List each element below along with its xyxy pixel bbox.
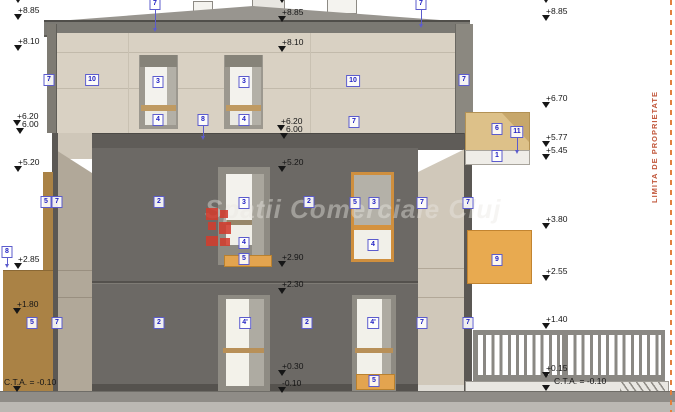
elevation-marker — [542, 0, 550, 3]
elevation-marker: C.T.A. = -0.10 — [13, 378, 56, 392]
watermark-logo-square — [206, 236, 218, 246]
window-reflection — [167, 67, 176, 105]
elevation-value: +8.10 — [18, 37, 40, 45]
property-line-dashed — [670, 0, 672, 412]
elevation-value: +2.30 — [282, 280, 304, 288]
elevation-value: +5.20 — [282, 158, 304, 166]
ref-box-7: 7 — [417, 317, 428, 329]
window-head — [225, 55, 262, 67]
leader-line — [7, 257, 8, 265]
fence-post-left — [473, 330, 477, 381]
ref-box-6: 6 — [492, 123, 503, 135]
elevation-marker: 6.00 — [277, 125, 303, 133]
watermark-logo-square — [206, 208, 218, 220]
ref-box-8: 8 — [2, 246, 13, 258]
elevation-marker: +1.40 — [542, 315, 568, 329]
ref-box-7: 7 — [44, 74, 55, 86]
watermark-logo-square — [220, 210, 228, 218]
window-low-left — [218, 295, 270, 391]
ref-box-2: 2 — [154, 196, 165, 208]
leader-arrow-icon — [5, 264, 9, 268]
ref-box-1: 1 — [492, 150, 503, 162]
elevation-marker: 6.00 — [13, 120, 39, 128]
elevation-marker: +8.85 — [14, 6, 40, 20]
facade-joint-highlight — [92, 283, 418, 284]
ref-box-11: 11 — [510, 126, 523, 138]
elevation-marker: +5.45 — [542, 146, 568, 160]
elevation-marker: +8.85 — [542, 7, 568, 21]
ground-subsoil — [0, 402, 675, 412]
ref-box-4: 4 — [153, 114, 164, 126]
elevation-triangle-icon — [13, 120, 21, 126]
ref-box-7: 7 — [416, 0, 427, 10]
ref-box-7: 7 — [463, 317, 474, 329]
watermark-logo-square — [219, 222, 231, 234]
window-reflection — [167, 111, 176, 125]
ref-box-4: 4 — [239, 114, 250, 126]
window-reflection — [252, 67, 261, 105]
ref-box-4: 4 — [239, 237, 250, 249]
fence-post-right — [661, 330, 665, 381]
leader-arrow-icon — [201, 136, 205, 140]
elevation-marker: +8.85 — [278, 8, 304, 22]
elevation-marker — [14, 0, 22, 3]
elevation-value: +1.40 — [546, 315, 568, 323]
window-head — [140, 55, 177, 67]
leader-line — [421, 9, 422, 25]
fence-balusters — [475, 335, 663, 376]
elevation-triangle-icon — [277, 125, 285, 131]
ref-box-2: 2 — [302, 317, 313, 329]
elevation-marker: C.T.A. = -0.10 — [542, 377, 606, 391]
ref-box-3: 3 — [239, 76, 250, 88]
window-glass-lower — [226, 353, 249, 386]
elevation-marker: +6.70 — [542, 94, 568, 108]
elevation-value: +8.85 — [546, 7, 568, 15]
elevation-triangle-icon — [16, 128, 24, 134]
leader-arrow-icon — [515, 150, 519, 154]
right-sidewall-line — [418, 268, 467, 269]
elevation-marker: +5.20 — [278, 158, 304, 172]
ref-box-2: 2 — [154, 317, 165, 329]
ref-box-3: 3 — [239, 197, 250, 209]
ref-box-9: 9 — [492, 254, 503, 266]
ref-box-5: 5 — [41, 196, 52, 208]
elevation-value: +8.85 — [282, 8, 304, 16]
left-sidewall-line — [56, 297, 92, 298]
leader-arrow-icon — [419, 24, 423, 28]
ref-box-8: 8 — [198, 114, 209, 126]
elevation-triangle-icon — [542, 385, 550, 391]
elevation-triangle-icon — [280, 133, 288, 139]
window-glass-lower — [357, 353, 382, 375]
elevation-value: +5.45 — [546, 146, 568, 154]
ref-box-5: 5 — [27, 317, 38, 329]
ref-box-4-prime: 4' — [239, 317, 251, 329]
elevation-triangle-icon — [14, 0, 22, 3]
upper-wall-groove-v1 — [128, 33, 129, 133]
elevation-marker: +1.80 — [13, 300, 39, 314]
elevation-value: +0.15 — [546, 364, 568, 372]
elevation-triangle-icon — [278, 0, 286, 3]
ref-box-5: 5 — [239, 253, 250, 265]
leader-arrow-icon — [153, 28, 157, 32]
ref-box-7: 7 — [349, 116, 360, 128]
ref-box-2: 2 — [304, 196, 315, 208]
window-reflection — [249, 299, 264, 386]
elevation-value: +2.85 — [18, 255, 40, 263]
elevation-value: +5.77 — [546, 133, 568, 141]
window-reflection — [252, 111, 261, 125]
ref-box-3: 3 — [153, 76, 164, 88]
ref-box-10: 10 — [85, 74, 99, 86]
elevation-value: +5.20 — [18, 158, 40, 166]
elevation-value: +6.70 — [546, 94, 568, 102]
ref-box-4: 4 — [368, 239, 379, 251]
elevation-drawing: LIMITA DE PROPRIETATE Spatii Comerciale … — [0, 0, 675, 412]
ref-box-3: 3 — [369, 197, 380, 209]
left-sidewall-line — [56, 270, 92, 271]
elevation-triangle-icon — [542, 0, 550, 3]
ref-box-7: 7 — [459, 74, 470, 86]
elevation-value: +2.90 — [282, 253, 304, 261]
elevation-value: +8.85 — [18, 6, 40, 14]
ref-box-7: 7 — [463, 197, 474, 209]
upper-wall-groove-h1 — [56, 52, 458, 53]
upper-wall-groove-v2 — [310, 33, 311, 133]
ref-box-7: 7 — [417, 197, 428, 209]
elevation-value: +8.10 — [282, 38, 304, 46]
ref-box-5: 5 — [369, 375, 380, 387]
elevation-marker: +3.80 — [542, 215, 568, 229]
elevation-value: +2.55 — [546, 267, 568, 275]
elevation-marker: +5.20 — [14, 158, 40, 172]
elevation-marker: +8.10 — [278, 38, 304, 52]
ref-box-7: 7 — [150, 0, 161, 10]
right-sidewall-line — [418, 297, 467, 298]
leader-line — [155, 9, 156, 29]
ref-box-5: 5 — [350, 197, 361, 209]
brown-wall-strip — [43, 172, 53, 272]
leader-line — [517, 137, 518, 151]
elevation-marker — [16, 128, 24, 134]
elevation-value: -0.10 — [282, 379, 301, 387]
elevation-marker: +2.55 — [542, 267, 568, 281]
ref-box-7: 7 — [52, 317, 63, 329]
watermark-logo-square — [220, 238, 230, 246]
brown-wall-block — [3, 270, 53, 393]
elevation-marker: +2.90 — [278, 253, 304, 267]
elevation-marker — [280, 133, 288, 139]
ref-box-10: 10 — [346, 75, 360, 87]
elevation-value: +1.80 — [17, 300, 39, 308]
leader-line — [203, 125, 204, 137]
elevation-value: C.T.A. = -0.10 — [554, 377, 606, 385]
elevation-marker: +0.30 — [278, 362, 304, 376]
elevation-marker: -0.10 — [278, 379, 301, 393]
property-line-label: LIMITA DE PROPRIETATE — [650, 28, 659, 203]
ref-box-4-prime: 4' — [367, 317, 379, 329]
fence-curb-hatch — [620, 382, 665, 391]
elevation-value: +3.80 — [546, 215, 568, 223]
elevation-marker: +2.85 — [14, 255, 40, 269]
right-sidewall — [418, 148, 467, 392]
ref-box-7: 7 — [52, 196, 63, 208]
elevation-marker: +8.10 — [14, 37, 40, 51]
left-sidewall — [56, 150, 92, 392]
elevation-value: C.T.A. = -0.10 — [4, 378, 56, 386]
elevation-value: 6.00 — [286, 125, 303, 133]
window-reflection — [382, 299, 391, 386]
elevation-value: 6.00 — [22, 120, 39, 128]
elevation-marker: +2.30 — [278, 280, 304, 294]
elevation-value: +0.30 — [282, 362, 304, 370]
watermark-logo-square — [208, 222, 216, 230]
elevation-marker — [278, 0, 286, 3]
